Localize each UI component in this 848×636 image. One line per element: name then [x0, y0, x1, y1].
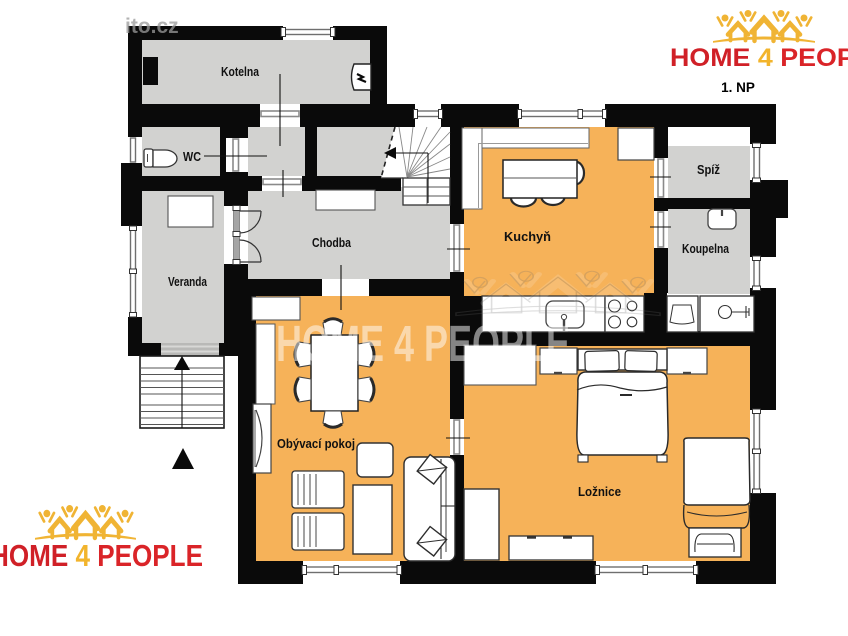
svg-text:WC: WC: [183, 149, 201, 164]
svg-text:Obývací pokoj: Obývací pokoj: [277, 436, 355, 451]
svg-text:Kuchyň: Kuchyň: [504, 229, 551, 244]
svg-text:1. NP: 1. NP: [721, 80, 755, 95]
svg-text:Kotelna: Kotelna: [221, 64, 260, 79]
svg-text:ito.cz: ito.cz: [125, 15, 179, 38]
svg-text:Spíž: Spíž: [697, 162, 720, 177]
svg-text:HOME 4 PEOPLE: HOME 4 PEOPLE: [670, 44, 848, 72]
svg-text:HOME 4 PEOPLE: HOME 4 PEOPLE: [276, 315, 570, 372]
svg-text:Ložnice: Ložnice: [578, 484, 621, 499]
svg-text:Chodba: Chodba: [312, 235, 352, 250]
svg-text:HOME 4 PEOPLE: HOME 4 PEOPLE: [0, 538, 203, 573]
svg-text:Koupelna: Koupelna: [682, 241, 730, 256]
svg-text:Veranda: Veranda: [168, 274, 208, 289]
